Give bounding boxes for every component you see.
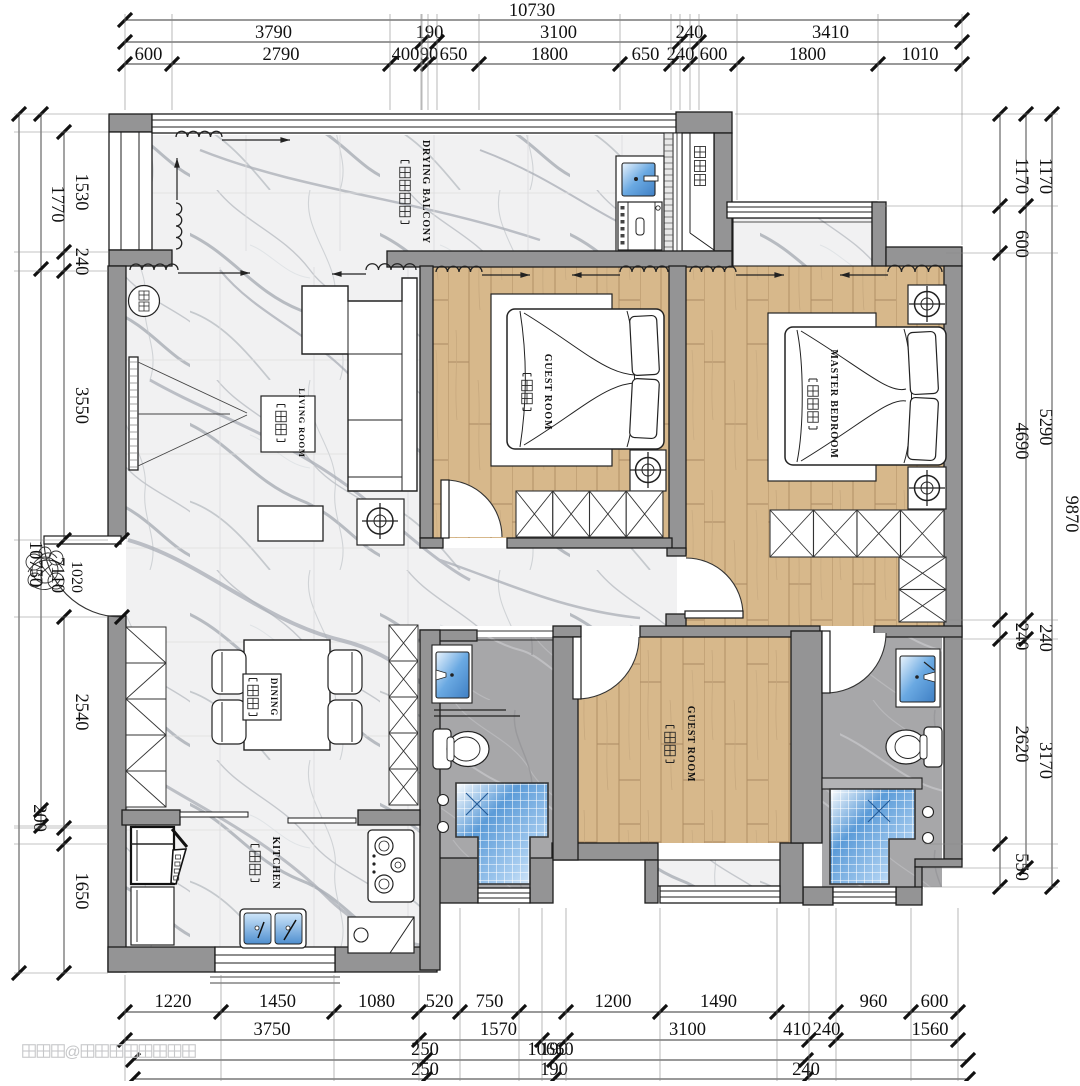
svg-text:2540: 2540 xyxy=(71,694,91,731)
svg-text:10730: 10730 xyxy=(509,1,555,21)
svg-text:4690: 4690 xyxy=(1011,423,1031,460)
svg-text:1080: 1080 xyxy=(358,992,395,1012)
svg-text:2790: 2790 xyxy=(263,45,300,65)
svg-text:1010: 1010 xyxy=(902,45,939,65)
svg-text:960: 960 xyxy=(860,992,888,1012)
svg-text:1450: 1450 xyxy=(259,992,296,1012)
svg-text:3410: 3410 xyxy=(812,23,849,43)
svg-text:1560: 1560 xyxy=(912,1020,949,1040)
svg-text:3790: 3790 xyxy=(255,23,292,43)
svg-text:3550: 3550 xyxy=(71,387,91,424)
svg-text:190: 190 xyxy=(540,1040,568,1060)
svg-text:600: 600 xyxy=(135,45,163,65)
svg-text:LIVING ROOM: LIVING ROOM xyxy=(297,388,307,457)
svg-text:1220: 1220 xyxy=(155,992,192,1012)
svg-text:10750: 10750 xyxy=(25,541,45,587)
svg-text:1020: 1020 xyxy=(68,561,85,593)
svg-text:1490: 1490 xyxy=(700,992,737,1012)
svg-text:190: 190 xyxy=(416,23,444,43)
svg-text:650: 650 xyxy=(632,45,660,65)
svg-text:1800: 1800 xyxy=(789,45,826,65)
svg-text:650: 650 xyxy=(440,45,468,65)
svg-text:2620: 2620 xyxy=(1011,726,1031,763)
svg-text:520: 520 xyxy=(426,992,454,1012)
svg-text:DRYING BALCONY: DRYING BALCONY xyxy=(420,140,431,244)
svg-text:GUEST ROOM: GUEST ROOM xyxy=(542,354,553,430)
svg-text:600: 600 xyxy=(921,992,949,1012)
svg-text:1530: 1530 xyxy=(71,174,91,211)
svg-text:400: 400 xyxy=(392,45,420,65)
svg-text:410: 410 xyxy=(783,1020,811,1040)
svg-text:@: @ xyxy=(64,1044,80,1061)
svg-text:90: 90 xyxy=(420,45,439,65)
svg-text:750: 750 xyxy=(476,992,504,1012)
svg-text:1770: 1770 xyxy=(47,186,67,223)
svg-text:250: 250 xyxy=(411,1040,439,1060)
svg-text:MASTER BEDROOM: MASTER BEDROOM xyxy=(828,349,839,458)
svg-text:7110: 7110 xyxy=(47,557,67,593)
svg-text:1200: 1200 xyxy=(595,992,632,1012)
svg-text:3100: 3100 xyxy=(669,1020,706,1040)
svg-text:1650: 1650 xyxy=(71,873,91,910)
svg-text:DINING: DINING xyxy=(269,678,279,716)
svg-text:1170: 1170 xyxy=(1011,158,1031,194)
svg-text:600: 600 xyxy=(1011,230,1031,258)
svg-text:1800: 1800 xyxy=(531,45,568,65)
svg-text:9870: 9870 xyxy=(1061,496,1080,533)
svg-text:1570: 1570 xyxy=(480,1020,517,1040)
svg-text:3100: 3100 xyxy=(540,23,577,43)
svg-text:KITCHEN: KITCHEN xyxy=(270,837,281,890)
svg-text:3750: 3750 xyxy=(254,1020,291,1040)
svg-text:GUEST ROOM: GUEST ROOM xyxy=(685,706,696,782)
svg-text:600: 600 xyxy=(700,45,728,65)
